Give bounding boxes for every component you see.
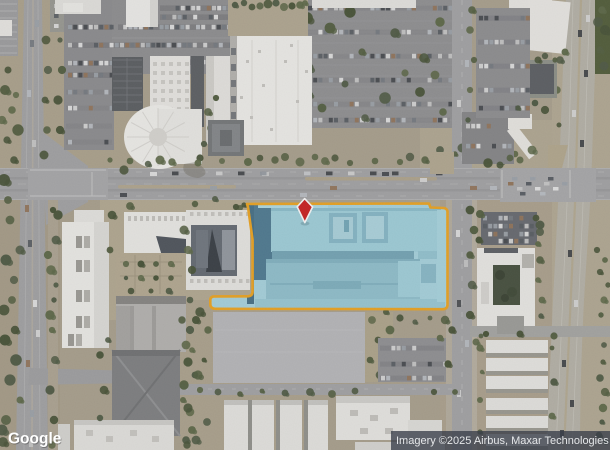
svg-text:Google: Google bbox=[8, 431, 62, 448]
svg-text:Imagery ©2025 Airbus, Maxar Te: Imagery ©2025 Airbus, Maxar Technologies bbox=[396, 435, 609, 447]
